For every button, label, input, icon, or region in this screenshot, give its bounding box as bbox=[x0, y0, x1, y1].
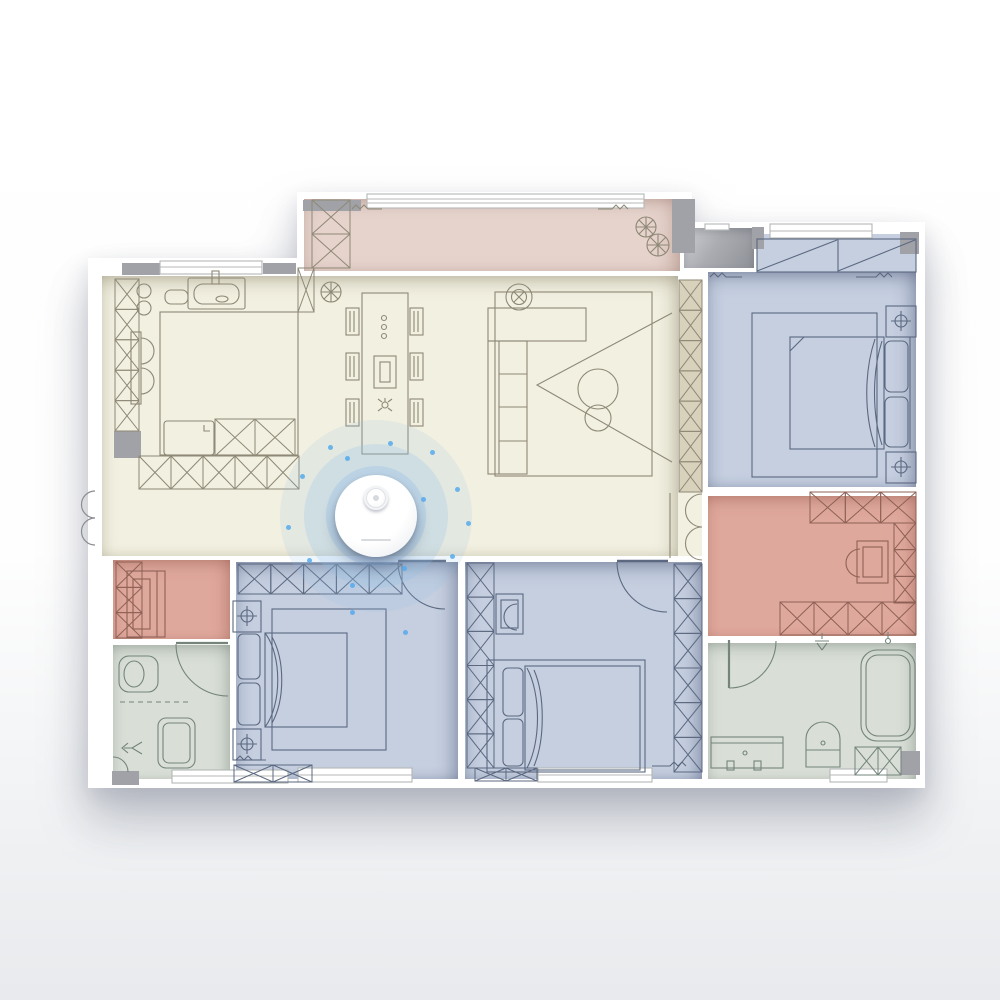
floor-plan-map bbox=[0, 0, 1000, 1000]
room-bedroom-master[interactable] bbox=[236, 562, 458, 779]
room-bedroom-center[interactable] bbox=[465, 562, 702, 779]
room-living-extension[interactable] bbox=[678, 492, 702, 556]
room-bathroom-left[interactable] bbox=[113, 645, 230, 779]
room-study[interactable] bbox=[708, 496, 916, 636]
robot-lidar-turret bbox=[364, 486, 388, 510]
room-entry-ledge bbox=[684, 228, 754, 268]
robot-brand-mark bbox=[361, 539, 391, 541]
room-bedroom-right[interactable] bbox=[708, 272, 916, 487]
room-bathroom-right[interactable] bbox=[708, 643, 916, 779]
room-storage-left[interactable] bbox=[113, 560, 230, 639]
robot-vacuum[interactable] bbox=[335, 475, 417, 557]
room-balcony[interactable] bbox=[304, 199, 680, 271]
